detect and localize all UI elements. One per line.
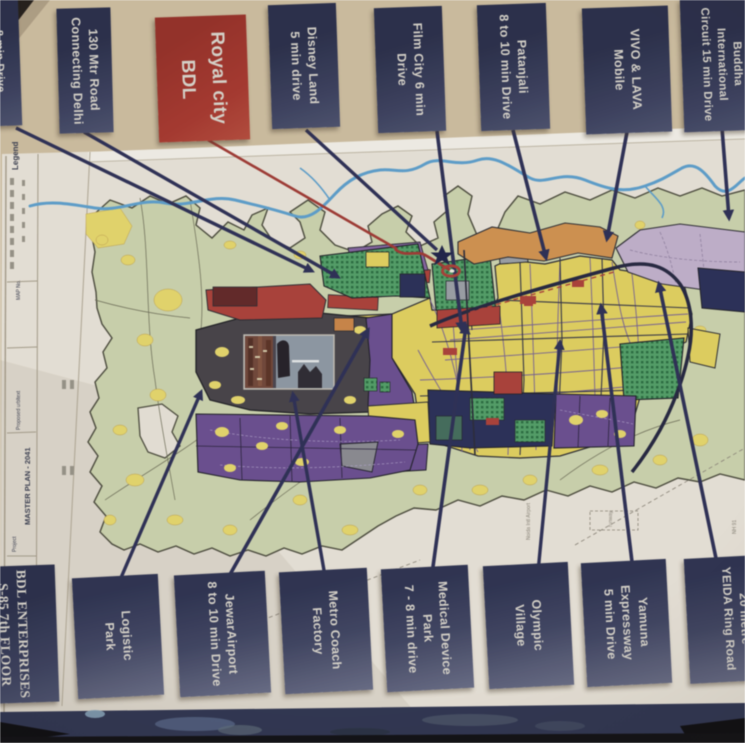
svg-text:Proposed urbltext: Proposed urbltext — [16, 390, 22, 430]
svg-text:MASTER PLAN - 2041: MASTER PLAN - 2041 — [23, 447, 32, 525]
svg-text:MAP No.: MAP No. — [16, 280, 22, 300]
svg-text:Project: Project — [12, 536, 18, 552]
svg-text:NH 91: NH 91 — [732, 520, 738, 534]
svg-text:Legend: Legend — [11, 141, 20, 170]
svg-text:runway: runway — [608, 510, 614, 527]
svg-text:Noida Intl Airport: Noida Intl Airport — [526, 502, 532, 540]
